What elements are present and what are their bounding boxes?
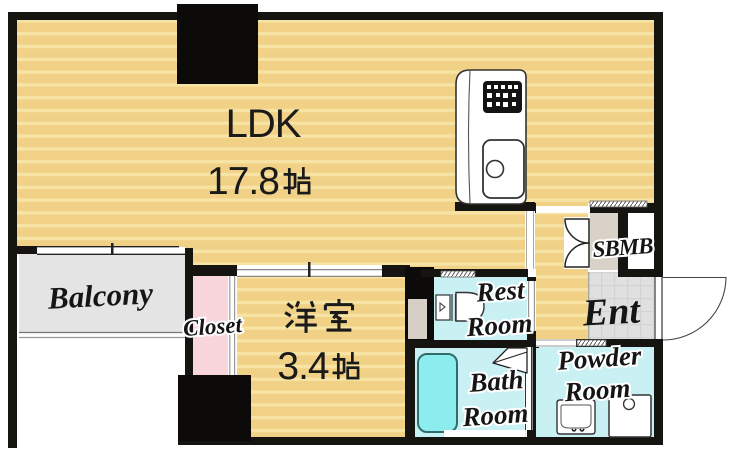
svg-text:3.4: 3.4: [277, 345, 329, 388]
svg-text:Room: Room: [464, 308, 533, 343]
svg-text:Closet: Closet: [182, 312, 243, 341]
svg-text:17.8: 17.8: [207, 160, 279, 203]
svg-text:LDK: LDK: [226, 102, 302, 146]
svg-text:Bath: Bath: [467, 364, 524, 398]
svg-text:Room: Room: [460, 398, 529, 433]
svg-text:Ent: Ent: [581, 289, 643, 334]
svg-text:Rest: Rest: [474, 274, 526, 307]
svg-text:Balcony: Balcony: [46, 275, 154, 316]
svg-text:Powder: Powder: [555, 340, 642, 376]
svg-text:SBMB: SBMB: [592, 233, 654, 262]
svg-text:Room: Room: [562, 373, 631, 408]
